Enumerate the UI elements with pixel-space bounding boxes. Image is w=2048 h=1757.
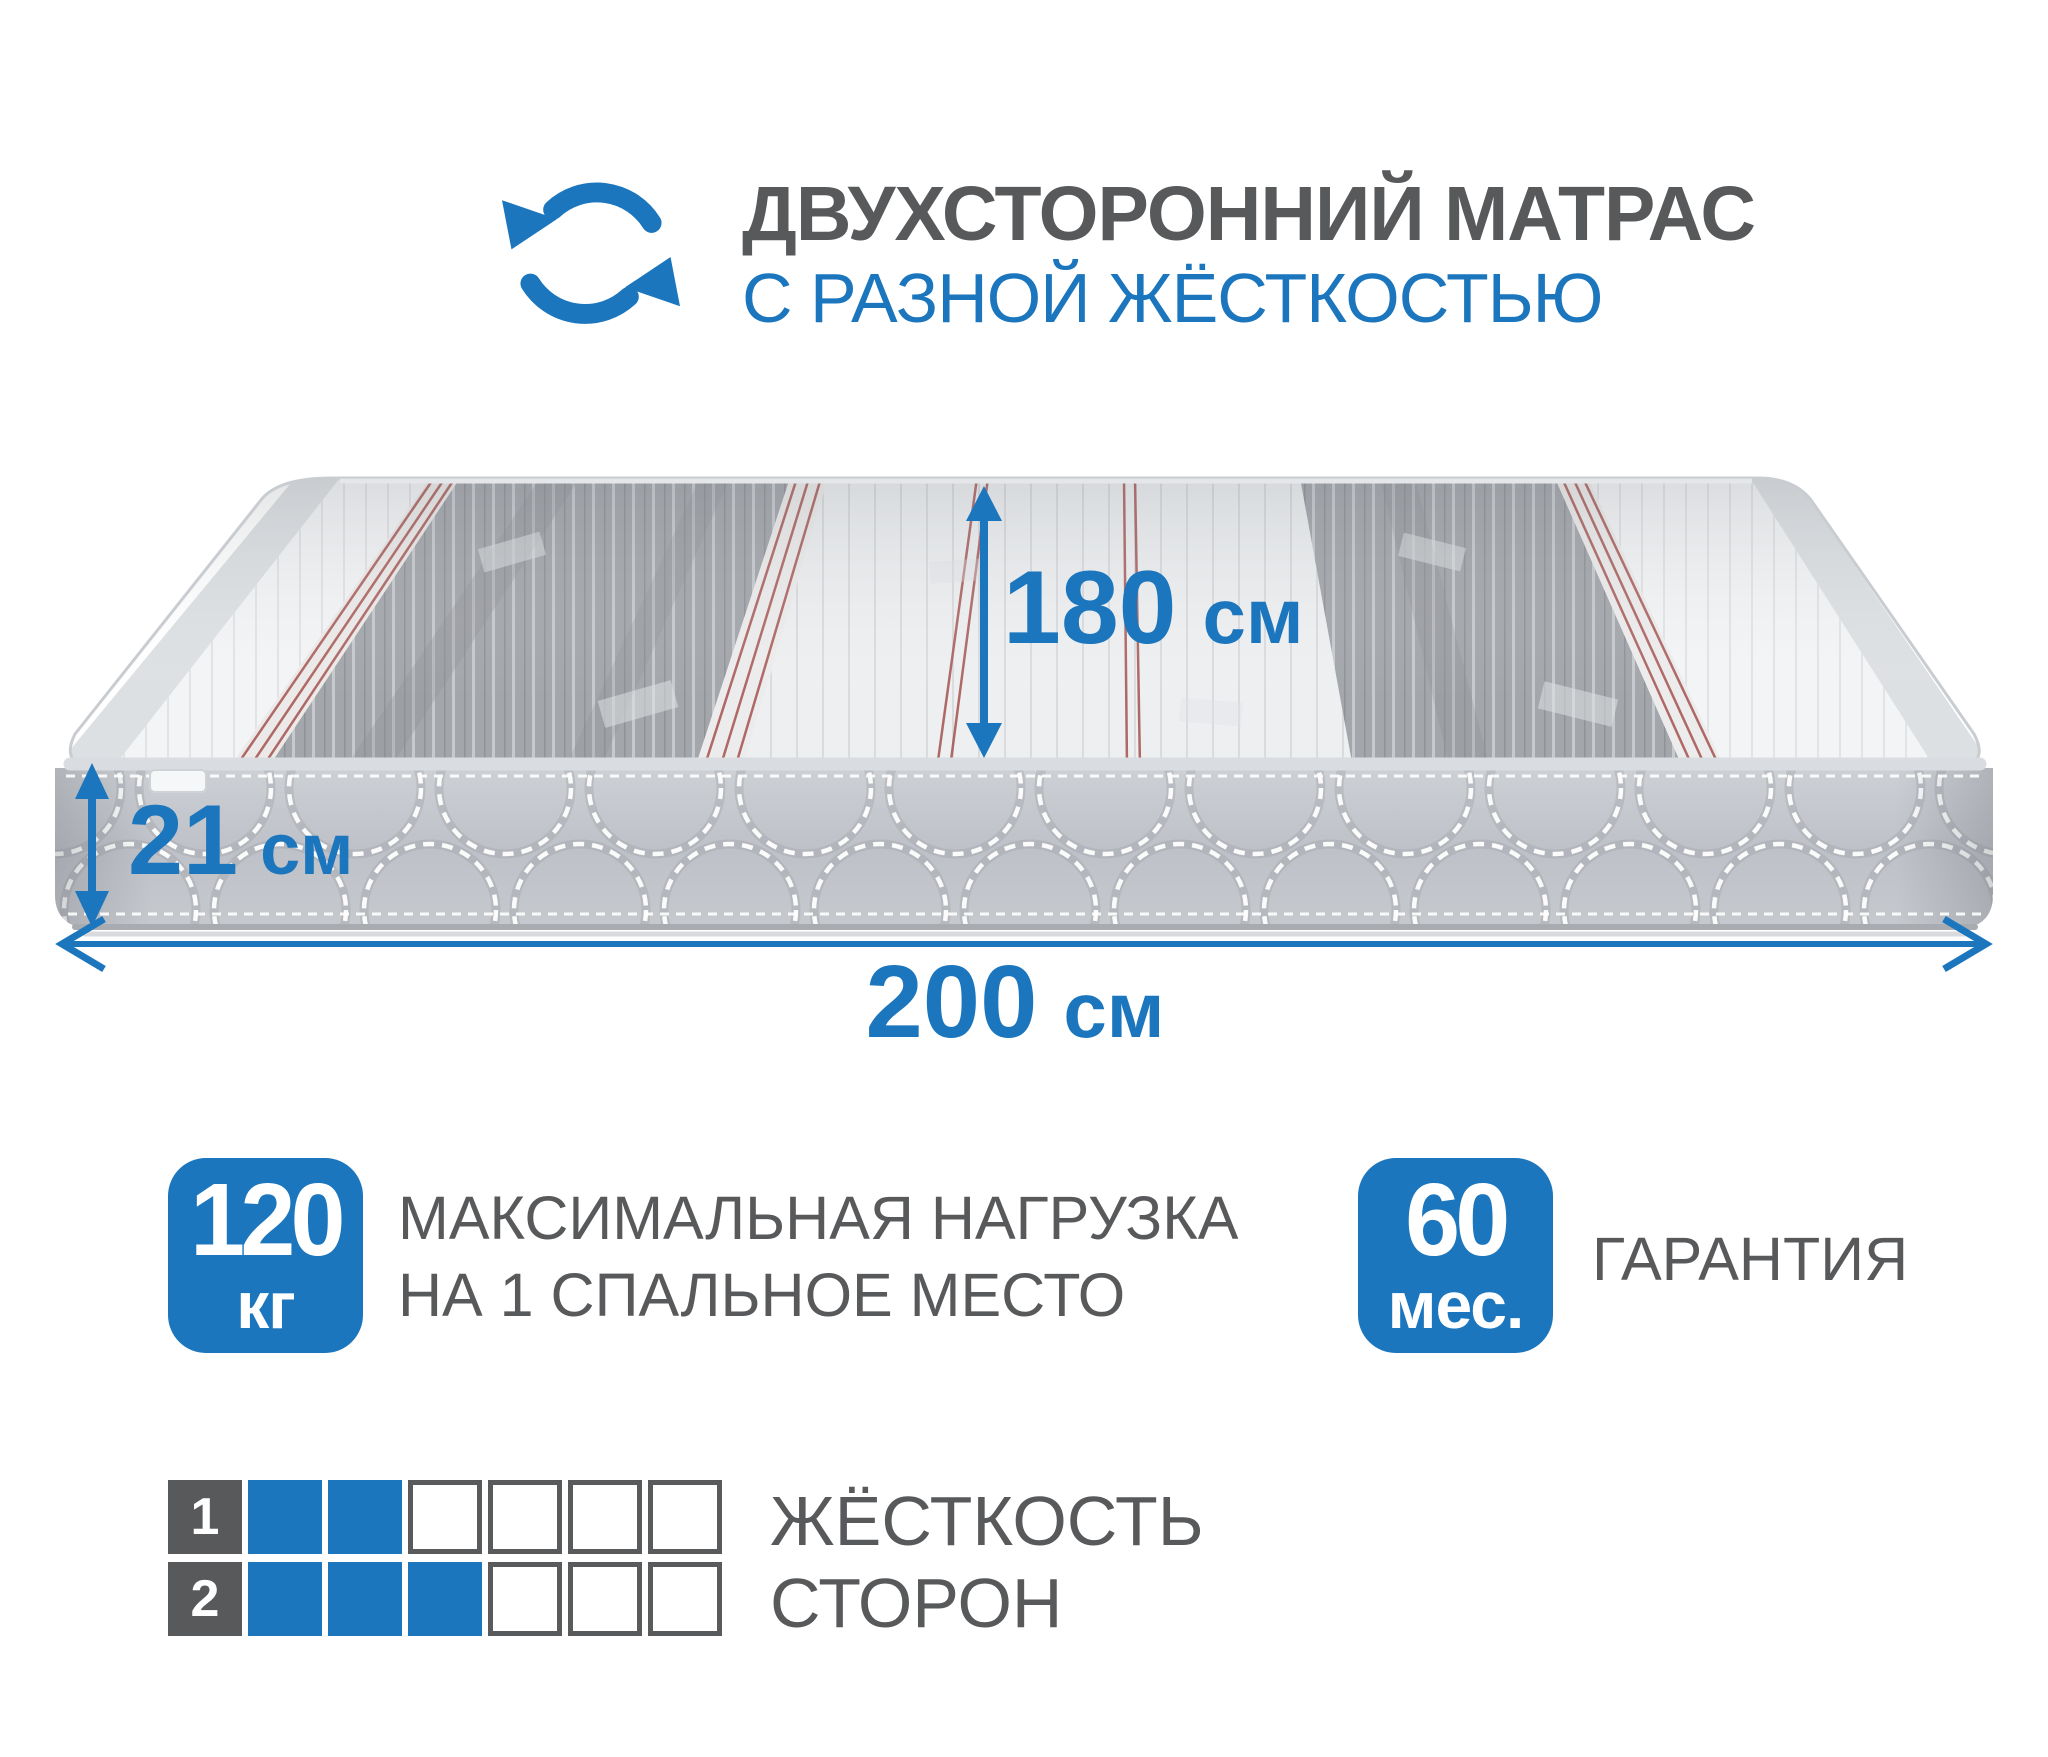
- hardness-side-label: 2: [168, 1562, 242, 1636]
- hardness-cell-filled: [408, 1562, 482, 1636]
- dimension-thickness: 21см: [128, 790, 353, 889]
- dimension-thickness-value: 21: [128, 784, 238, 895]
- hardness-cell-filled: [328, 1480, 402, 1554]
- hardness-cell-empty: [568, 1562, 642, 1636]
- dimension-length-value: 200: [866, 944, 1038, 1059]
- hardness-side-label: 1: [168, 1480, 242, 1554]
- hardness-cell-filled: [328, 1562, 402, 1636]
- hardness-grid: 12: [168, 1480, 722, 1644]
- hardness-cell-filled: [248, 1562, 322, 1636]
- max-load-value: 120: [190, 1173, 341, 1268]
- dimension-length: 200см: [765, 950, 1265, 1053]
- dimension-depth-value: 180: [1003, 550, 1177, 666]
- warranty-value: 60: [1405, 1173, 1505, 1268]
- dimension-length-unit: см: [1063, 966, 1164, 1054]
- hardness-cell-empty: [488, 1480, 562, 1554]
- hardness-cell-empty: [408, 1480, 482, 1554]
- hardness-cell-empty: [568, 1480, 642, 1554]
- hardness-cell-empty: [488, 1562, 562, 1636]
- max-load-label-line2: НА 1 СПАЛЬНОЕ МЕСТО: [398, 1257, 1238, 1334]
- dimension-thickness-unit: см: [260, 810, 353, 890]
- hardness-row: 1: [168, 1480, 722, 1554]
- warranty-label: ГАРАНТИЯ: [1592, 1221, 1908, 1298]
- dimension-depth-unit: см: [1203, 572, 1304, 660]
- max-load-label-line1: МАКСИМАЛЬНАЯ НАГРУЗКА: [398, 1180, 1238, 1257]
- max-load-label: МАКСИМАЛЬНАЯ НАГРУЗКА НА 1 СПАЛЬНОЕ МЕСТ…: [398, 1180, 1238, 1334]
- hardness-cell-empty: [648, 1480, 722, 1554]
- hardness-label-line2: СТОРОН: [770, 1562, 1204, 1644]
- hardness-label-line1: ЖЁСТКОСТЬ: [770, 1480, 1204, 1562]
- hardness-cell-empty: [648, 1562, 722, 1636]
- max-load-badge: 120 кг: [168, 1158, 363, 1353]
- hardness-label: ЖЁСТКОСТЬ СТОРОН: [770, 1480, 1204, 1644]
- mattress-infographic: ДВУХСТОРОННИЙ МАТРАС С РАЗНОЙ ЖЁСТКОСТЬЮ: [0, 0, 2048, 1757]
- hardness-cell-filled: [248, 1480, 322, 1554]
- dimension-depth: 180см: [1003, 556, 1304, 660]
- warranty-unit: мес.: [1388, 1272, 1524, 1338]
- hardness-row: 2: [168, 1562, 722, 1636]
- warranty-badge: 60 мес.: [1358, 1158, 1553, 1353]
- max-load-unit: кг: [236, 1272, 295, 1338]
